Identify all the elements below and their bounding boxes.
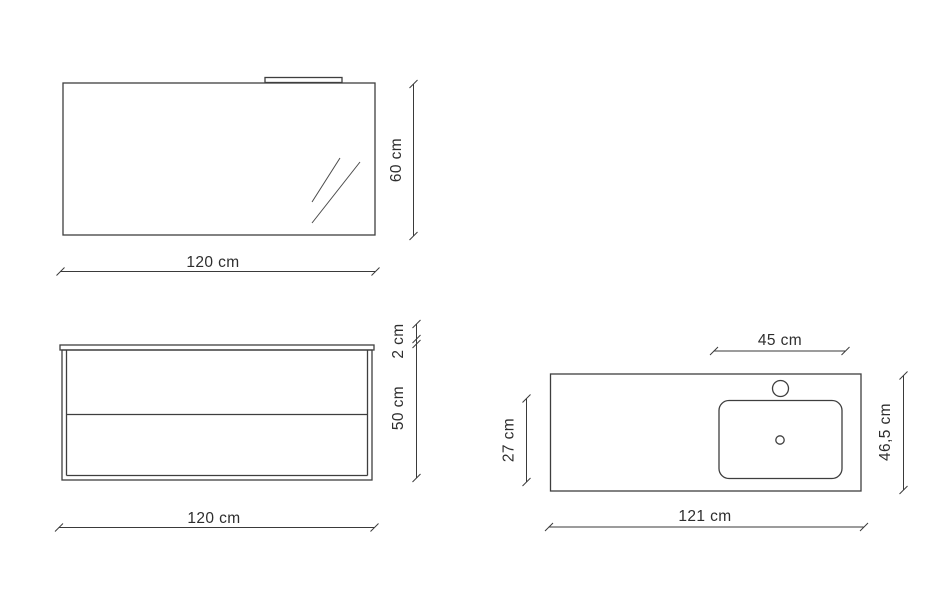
mirror-glare-line xyxy=(312,162,360,223)
basin-depth-label: 27 cm xyxy=(501,418,518,462)
mirror-width-dimension: 120 cm xyxy=(57,254,380,276)
mirror-height-label: 60 cm xyxy=(388,138,405,182)
mirror-height-dimension: 60 cm xyxy=(388,80,418,240)
cabinet-top-thickness-label: 2 cm xyxy=(390,323,407,358)
basin-depth-dimension: 27 cm xyxy=(501,395,531,487)
faucet-hole xyxy=(773,381,789,397)
countertop-depth-dimension: 46,5 cm xyxy=(877,372,908,495)
basin-width-dimension: 45 cm xyxy=(710,332,850,355)
cabinet-height-dimension: 2 cm 50 cm xyxy=(390,320,421,482)
cabinet-front-view: 2 cm 50 cm 120 cm xyxy=(55,320,421,532)
mirror-light-bar xyxy=(265,78,342,83)
countertop-depth-label: 46,5 cm xyxy=(877,403,894,461)
countertop-width-label: 121 cm xyxy=(678,508,731,525)
mirror-front-view: 60 cm 120 cm xyxy=(57,78,418,276)
furniture-dimension-drawing: 60 cm 120 cm xyxy=(0,0,942,616)
countertop-width-dimension: 121 cm xyxy=(545,508,868,531)
drain-hole xyxy=(776,436,784,444)
basin-width-label: 45 cm xyxy=(758,332,802,349)
cabinet-height-label: 50 cm xyxy=(390,386,407,430)
washbasin-countertop-outline xyxy=(551,374,862,491)
mirror-width-label: 120 cm xyxy=(186,254,239,271)
mirror-glare-line xyxy=(312,158,340,202)
technical-drawing-page: 60 cm 120 cm xyxy=(0,0,942,616)
cabinet-top-panel xyxy=(60,345,374,350)
cabinet-width-dimension: 120 cm xyxy=(55,510,379,532)
mirror-outline xyxy=(63,83,375,235)
washbasin-top-view: 45 cm 27 cm 46,5 cm 121 cm xyxy=(501,332,908,531)
cabinet-width-label: 120 cm xyxy=(187,510,240,527)
washbasin-bowl-outline xyxy=(719,401,842,479)
